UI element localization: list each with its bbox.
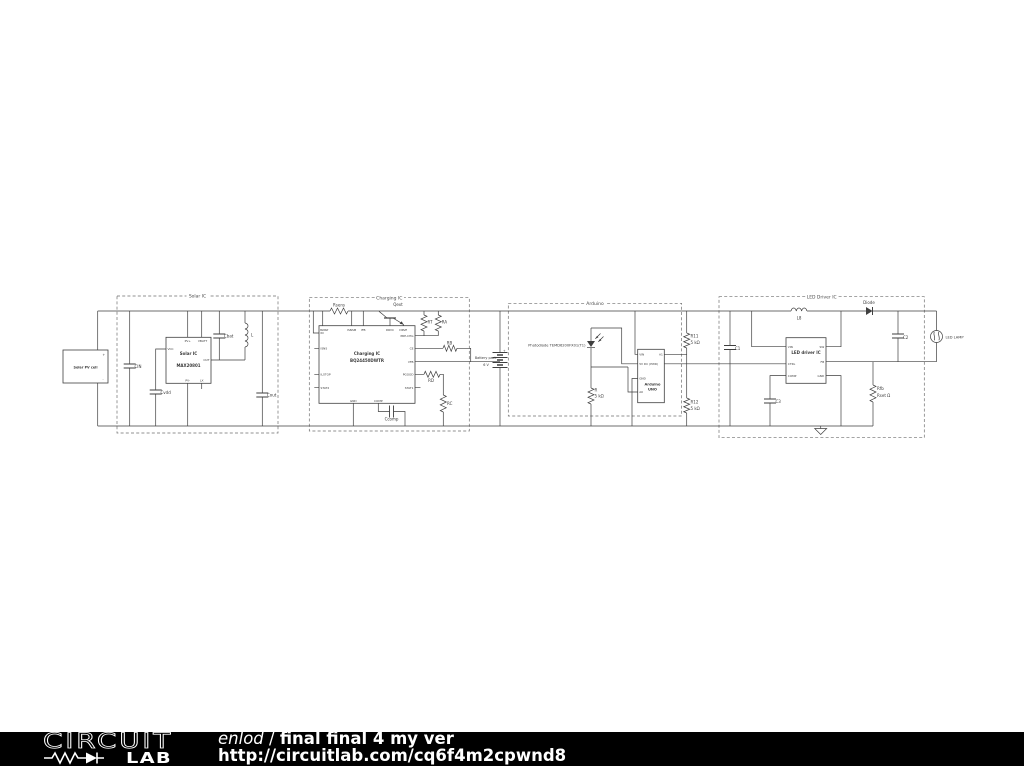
pin-ctrl: CTRL — [788, 362, 796, 366]
circuitlab-export-page: Solar PV cell + - CIN Cvdd Cbat L Cout S… — [0, 0, 1024, 768]
pv-plus-mark: + — [103, 353, 106, 357]
capacitor-c3-label: C3 — [776, 399, 782, 404]
pin-vcc: VCC — [168, 347, 174, 351]
led-lamp-label: LED LAMP — [946, 335, 965, 339]
pin-ilstop: ILSTOP — [321, 373, 331, 377]
circuitlab-logo: CIRCUIT LAB — [42, 731, 192, 766]
inductor-l8-label: L8 — [797, 316, 802, 321]
inductor-l — [245, 323, 248, 347]
resistor-r12 — [684, 398, 690, 413]
battery-pack-symbol — [493, 353, 508, 368]
photodiode-label: Photodiode TEMD6200FX01(T1) — [528, 343, 586, 347]
resistor-rb — [443, 345, 457, 351]
arduino-section-title: Arduino — [586, 301, 604, 307]
resistor-r — [588, 388, 594, 404]
resistor-ra-label: RA — [442, 320, 448, 325]
solar-ic-part: MAX20801 — [176, 363, 200, 368]
resistor-rb-label: RB — [447, 341, 453, 346]
resistor-rfb-value: Rset Ω — [877, 393, 890, 398]
schematic-image: Solar PV cell + - CIN Cvdd Cbat L Cout S… — [0, 0, 1024, 768]
led-section-title: LED Driver IC — [807, 294, 837, 300]
resistor-rt — [421, 315, 427, 331]
pin-vin: VIN — [639, 353, 644, 357]
transistor-qext — [379, 311, 403, 325]
resistor-r-value: 5 kΩ — [595, 394, 604, 399]
schematic-url: http://circuitlab.com/cq6f4m2cpwnd8 — [218, 747, 566, 764]
arduino-section: Photodiode TEMD6200FX01(T1) VIN 5V DC (P… — [528, 311, 786, 426]
pin-gnd: GND — [350, 399, 357, 403]
pin-gnd: GND — [818, 374, 825, 378]
resistor-r-label: R — [595, 388, 598, 393]
resistor-r11-value: 5 kΩ — [691, 340, 700, 345]
arduino-name-line2: UNO — [648, 388, 657, 392]
capacitor-cout-label: Cout — [267, 393, 277, 398]
resistor-r12-value: 5 kΩ — [691, 406, 700, 411]
resistor-rc — [440, 395, 446, 412]
pin-comp: COMP — [374, 399, 383, 403]
led-lamp-symbol — [931, 331, 943, 343]
pin-stat1: STAT1 — [405, 386, 414, 390]
capacitor-c1-label: C1 — [735, 346, 741, 351]
solar-section-title: Solar IC — [189, 294, 206, 300]
solar-ic-name: Solar IC — [180, 351, 198, 356]
led-ic-name: LED driver IC — [791, 350, 820, 355]
pin-sw: SW — [819, 345, 824, 349]
led-wires — [730, 311, 937, 429]
solar-section: Solar PV cell + - CIN Cvdd Cbat L Cout S… — [63, 311, 277, 426]
battery-voltage-label: 6 V — [483, 363, 489, 367]
pin-pgood: PGOOD — [403, 373, 415, 377]
led-driver-section: LED driver IC VIN CTRL COMP SW FB GND C1… — [724, 300, 964, 435]
battery-plus-mark: + — [503, 349, 506, 353]
pin-5v: 5V DC (PWR) — [639, 362, 658, 366]
charging-section-title: Charging IC — [376, 295, 402, 301]
pv-minus-mark: - — [103, 378, 104, 382]
pin-comp: COMP — [788, 374, 797, 378]
charging-section: Charging IC BQ24450DWTR ISNSP ISNSM IFB … — [313, 302, 507, 426]
pin-drvc: DRVC — [386, 328, 394, 332]
solar-pv-cell-label: Solar PV cell — [74, 366, 98, 370]
pin-gnd: GND — [639, 377, 646, 381]
pin-stat2: STAT2 — [321, 386, 330, 390]
transistor-qext-label: Qext — [393, 302, 403, 307]
capacitor-cbat-label: Cbat — [224, 334, 234, 339]
charging-ic-name: Charging IC — [354, 351, 380, 356]
pin-vfb: VFB — [408, 360, 414, 364]
pin-pvp: PV+ — [185, 339, 192, 343]
resistor-rt-label: RT — [428, 320, 433, 325]
schematic-title-line: enlod / final final 4 my ver — [218, 730, 566, 747]
inductor-l-label: L — [251, 333, 254, 338]
pin-isnsm: ISNSM — [347, 328, 357, 332]
resistor-r11 — [684, 333, 690, 348]
footer-title-block: enlod / final final 4 my ver http://circ… — [218, 730, 566, 764]
capacitor-cin-label: CIN — [135, 364, 142, 369]
capacitor-c2-label: C2 — [903, 335, 909, 340]
resistor-rd — [424, 371, 440, 377]
pin-isns: ISNS — [321, 347, 328, 351]
pin-out: OUT — [203, 358, 209, 362]
pin-a0: A0 — [639, 390, 643, 394]
inductor-l8 — [791, 308, 807, 311]
resistor-rfb-label: Rfb — [877, 386, 884, 391]
pin-fb: FB — [821, 360, 825, 364]
arduino-name-line1: Arduino — [645, 383, 661, 387]
capacitor-cvdd-label: Cvdd — [161, 390, 172, 395]
pin-ifb: IFB — [361, 328, 366, 332]
pin-ce: CE — [410, 347, 414, 351]
resistor-rsens — [330, 308, 348, 314]
charging-ic-part: BQ24450DWTR — [350, 358, 384, 363]
resistor-rsens-label: Rsens — [333, 303, 345, 308]
photodiode-symbol — [587, 334, 604, 348]
pin-drve: DRVE — [399, 328, 407, 332]
logo-resistor-diode-icon — [44, 753, 104, 764]
resistor-rd-label: RD — [428, 378, 434, 383]
pin-vbatt: VBATT — [198, 339, 207, 343]
resistor-ra — [435, 315, 441, 331]
pin-pvm: PV- — [185, 379, 190, 383]
capacitor-ccomp-label: Ccomp — [385, 417, 399, 422]
battery-pack-label: Battery pack — [475, 356, 497, 360]
pin-lx: LX — [200, 379, 204, 383]
resistor-r12-label: R12 — [691, 400, 699, 405]
diode-label: Diode — [863, 300, 875, 305]
section-titles: Solar IC Charging IC Arduino LED Driver … — [187, 294, 839, 307]
pin-vin: VIN — [788, 345, 793, 349]
diode-symbol — [866, 307, 873, 315]
resistor-rc-label: RC — [447, 401, 453, 406]
pin-prechg: PRE-CHG — [400, 334, 413, 338]
ground-symbol — [815, 429, 827, 435]
pin-in: IN — [321, 331, 324, 335]
resistor-r11-label: R11 — [691, 334, 699, 339]
pin-a1: A1 — [659, 353, 663, 357]
logo-word-lab: LAB — [126, 749, 172, 766]
resistor-rfb — [870, 385, 876, 402]
